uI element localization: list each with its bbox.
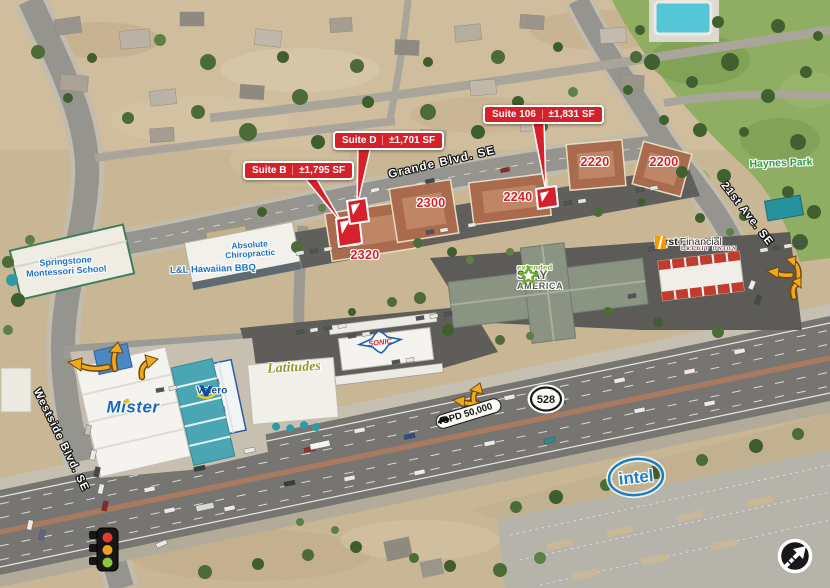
valero-emblem-icon [196, 386, 216, 401]
building-number-2320: 2320 [350, 249, 379, 263]
building-number-2240: 2240 [503, 191, 532, 205]
intel-wordmark: intel [618, 466, 655, 489]
traffic-light-icon [89, 528, 118, 571]
ff-credit-union: CREDIT UNION [681, 247, 737, 252]
suite-area: ±1,701 SF [389, 135, 435, 146]
suite-b-callout: Suite B|±1,795 SF [243, 161, 354, 180]
absolute-chiropractic-label: Absolute Chiropractic [224, 239, 275, 261]
turn-arrows-east [767, 256, 801, 297]
extended-stay-logo: extended STAY AMERICA [517, 264, 563, 291]
first-financial-logo: FirstFinancial CREDIT UNION [655, 236, 737, 252]
annotation-layer: 528 SONIC intel [0, 0, 830, 588]
sonic-wordmark: SONIC [368, 336, 393, 348]
sonic-logo: SONIC [358, 329, 402, 356]
aerial-site-map: 528 SONIC intel Suite B|±1,795 SF Suite … [0, 0, 830, 588]
suite-name: Suite 106 [492, 109, 536, 120]
valero-logo: Valero [196, 386, 227, 397]
divider: | [382, 135, 383, 146]
intel-logo: intel [607, 456, 664, 497]
route-shield-number: 528 [537, 394, 555, 406]
building-number-2300: 2300 [416, 197, 445, 211]
mister-logo: Mister [106, 399, 159, 418]
suite-area: ±1,795 SF [299, 165, 345, 176]
first-financial-icon [655, 236, 667, 249]
suite-name: Suite B [252, 165, 286, 176]
latitudes-label: Latitudes [267, 359, 321, 377]
building-number-2200: 2200 [649, 156, 678, 170]
north-arrow-icon [780, 541, 811, 572]
extended-stay-star-icon [517, 264, 540, 287]
mister-wordmark: Mister [106, 398, 159, 417]
suite-name: Suite D [342, 135, 376, 146]
suite-area: ±1,831 SF [549, 109, 595, 120]
mister-i-dot [124, 399, 129, 404]
haynes-park-label: Haynes Park [749, 157, 812, 171]
turn-arrows-west [68, 342, 158, 377]
route-528-shield: 528 [529, 386, 563, 412]
suite-d-callout: Suite D|±1,701 SF [333, 131, 444, 150]
divider: | [542, 109, 543, 120]
building-number-2220: 2220 [580, 156, 609, 170]
suite-106-callout: Suite 106|±1,831 SF [483, 105, 604, 124]
divider: | [292, 165, 293, 176]
